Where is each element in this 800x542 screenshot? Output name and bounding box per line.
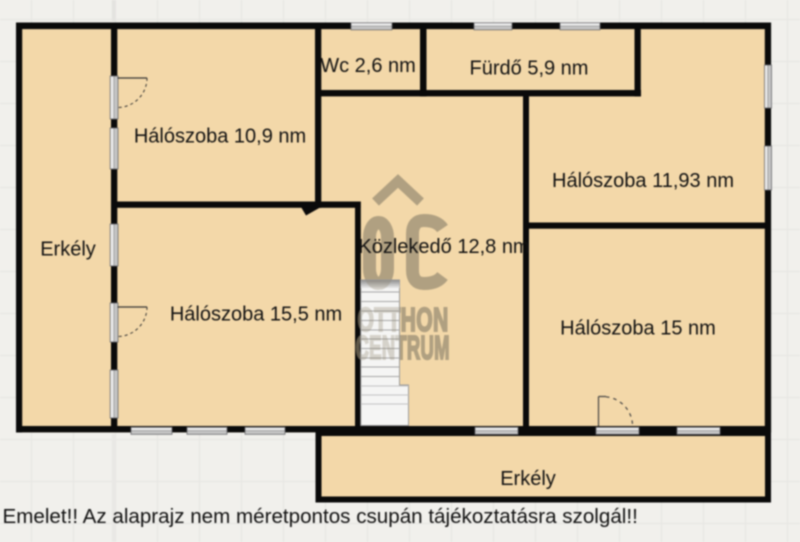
svg-text:Erkély: Erkély: [500, 468, 556, 490]
svg-text:Hálószoba 15,5 nm: Hálószoba 15,5 nm: [170, 304, 342, 326]
svg-text:Wc 2,6 nm: Wc 2,6 nm: [320, 55, 416, 77]
svg-text:Hálószoba 11,93 nm: Hálószoba 11,93 nm: [552, 170, 734, 192]
svg-text:Erkély: Erkély: [40, 239, 96, 261]
svg-text:Fürdő 5,9 nm: Fürdő 5,9 nm: [470, 58, 589, 80]
svg-text:Emelet!! Az alaprajz nem méret: Emelet!! Az alaprajz nem méretpontos csu…: [3, 505, 638, 528]
svg-text:Közlekedő 12,8 nm: Közlekedő 12,8 nm: [358, 236, 529, 258]
svg-text:Hálószoba 15 nm: Hálószoba 15 nm: [560, 318, 716, 340]
svg-text:Hálószoba 10,9 nm: Hálószoba 10,9 nm: [134, 126, 306, 148]
